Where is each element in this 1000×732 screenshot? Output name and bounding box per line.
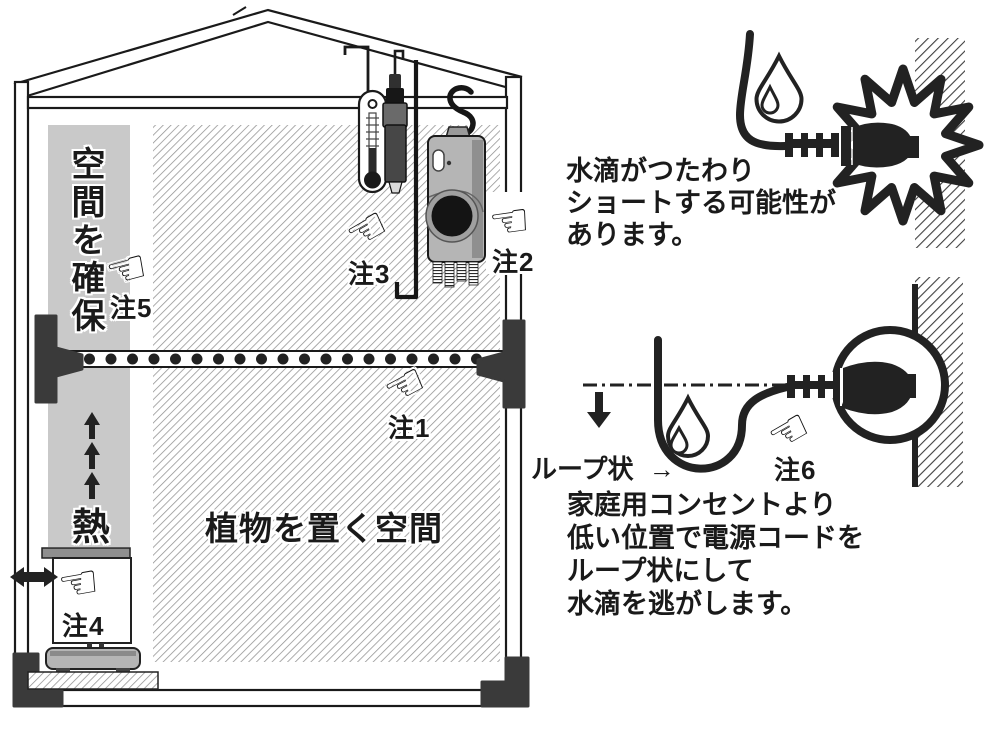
loop-label-text: ループ状 — [531, 454, 633, 484]
drip-loop-caption: 家庭用コンセントより 低い位置で電源コードを ループ状にして 水滴を逃がします。 — [567, 489, 864, 621]
caption-line: ショートする可能性が — [566, 187, 836, 219]
heat-label: 熱 — [72, 496, 110, 551]
plant-area-label: 植物を置く空間 — [205, 502, 443, 550]
caption-line: あります。 — [566, 219, 836, 251]
right-arrow-icon: → — [649, 454, 675, 484]
loop-shape-label: ループ状 → — [531, 449, 675, 486]
note3-label: 注3 — [348, 254, 390, 291]
shelf-dots — [63, 354, 504, 365]
pointing-hand-icon-note4: ☜ — [54, 557, 103, 609]
note2-label: 注2 — [492, 242, 534, 279]
note5-label: 注5 — [110, 288, 152, 325]
heater-platform — [28, 672, 158, 689]
manual-diagram-page: 空間を確保 ☜ 注5 ☜ 注3 ☜ 注2 ☜ 注1 ☜ 注4 熱 植物を置く空間… — [0, 0, 1000, 732]
caption-line: 家庭用コンセントより — [567, 489, 864, 522]
note6-label: 注6 — [774, 450, 816, 487]
indicator-window — [433, 150, 444, 171]
caption-line: 水滴を逃がします。 — [567, 588, 864, 621]
down-arrow-icon — [587, 392, 611, 428]
dial-knob — [432, 196, 473, 237]
pointing-hand-icon-note2: ☜ — [486, 195, 533, 246]
water-droplet-icon — [668, 398, 708, 456]
caption-line: 水滴がつたわり — [566, 155, 836, 187]
note4-label: 注4 — [62, 606, 104, 643]
caption-line: ループ状にして — [567, 555, 864, 588]
temperature-sensor-icon — [383, 51, 407, 193]
water-droplet-icon — [757, 56, 802, 122]
shelf-bar — [55, 351, 507, 367]
plug-icon — [787, 362, 916, 415]
s-hook-icon — [445, 88, 473, 141]
space-clearance-label: 空間を確保 — [68, 146, 102, 336]
bottom-right-corner-bracket — [482, 658, 528, 706]
caption-line: 低い位置で電源コードを — [567, 522, 864, 555]
short-circuit-caption: 水滴がつたわり ショートする可能性が あります。 — [566, 155, 836, 251]
note1-label: 注1 — [388, 408, 430, 445]
